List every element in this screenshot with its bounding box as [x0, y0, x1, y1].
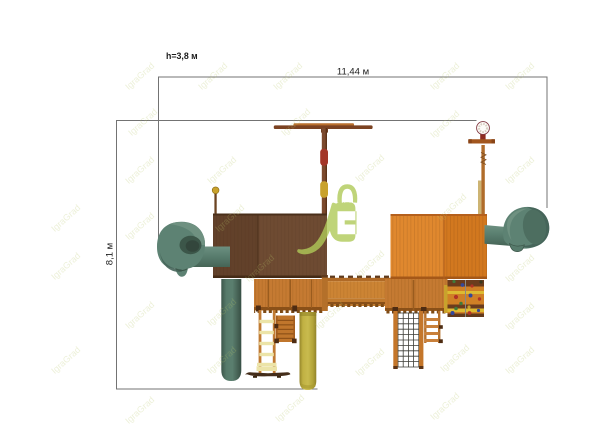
svg-text:8,1 м: 8,1 м: [105, 243, 116, 265]
svg-text:h=3,8 м: h=3,8 м: [166, 51, 198, 61]
svg-text:11,44 м: 11,44 м: [337, 67, 369, 78]
